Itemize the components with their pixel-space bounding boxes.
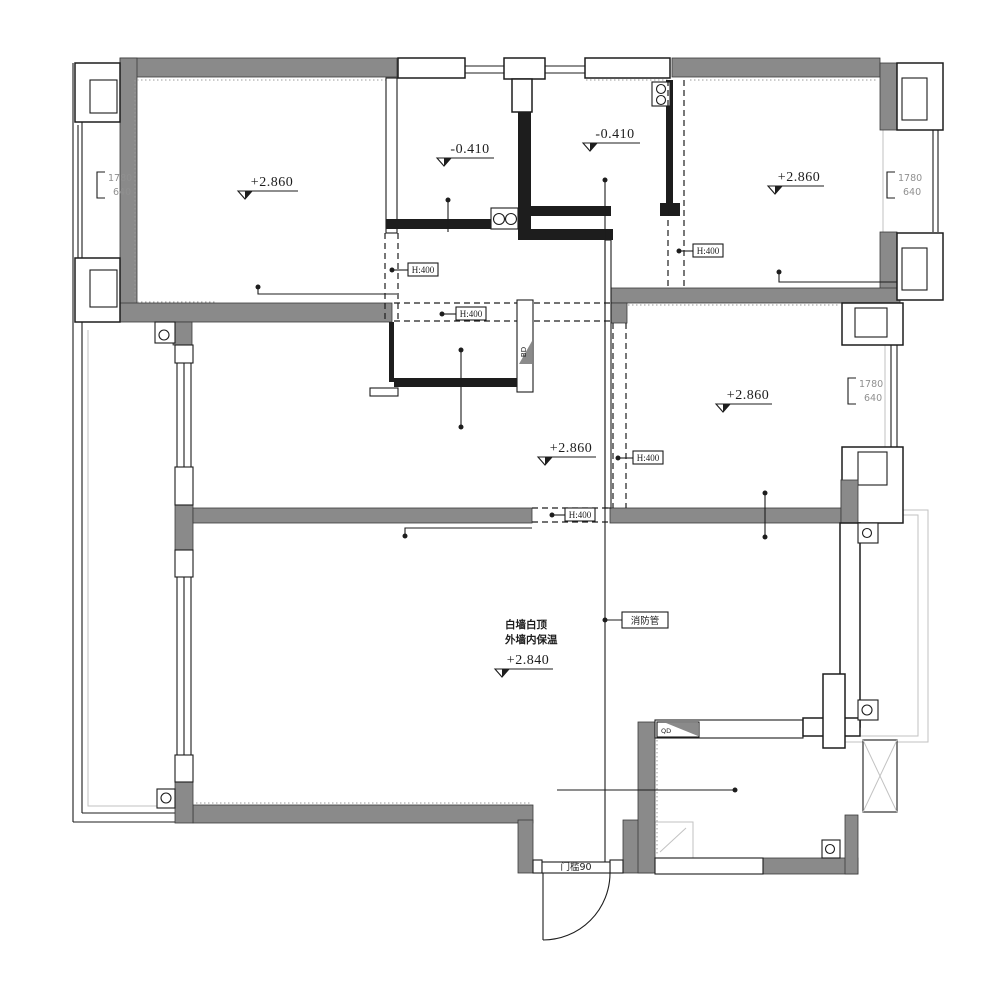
elevation-top-left-room: +2.860 xyxy=(238,175,298,199)
column-t-stem xyxy=(512,79,532,112)
elevation-hall: +2.860 xyxy=(538,441,596,465)
svg-text:1780: 1780 xyxy=(898,173,922,184)
column-t-top xyxy=(504,58,545,79)
wall-center-column xyxy=(518,112,531,229)
wall-mid-horizontal-top xyxy=(610,288,900,303)
wall-middle-right xyxy=(610,508,858,523)
column-tl-top-inner xyxy=(90,80,117,113)
qd-box: QD xyxy=(657,722,699,737)
column-mr-top-inner xyxy=(855,308,887,337)
wall-right-upper xyxy=(880,63,897,130)
elevation-bath-right: -0.410 xyxy=(583,127,640,151)
column-mr-bottom-inner xyxy=(858,452,887,485)
svg-text:H:400: H:400 xyxy=(569,510,592,520)
beam-tag-4: H:400 xyxy=(616,451,664,464)
column-tr-top-inner xyxy=(902,78,927,120)
elevation-mid-right-room: +2.860 xyxy=(716,388,772,412)
beam-tag-5: H:400 xyxy=(550,508,596,521)
wall-bath-right-bottom xyxy=(531,206,611,216)
wall-hall-left xyxy=(389,322,394,382)
entry-jamb-right xyxy=(610,860,623,873)
svg-text:H:400: H:400 xyxy=(637,453,660,463)
jamb-4 xyxy=(175,755,193,782)
svg-text:1780: 1780 xyxy=(108,173,132,184)
window-top-2 xyxy=(585,58,670,78)
threshold-label: 门槛90 xyxy=(560,861,591,873)
wall-top-left-top xyxy=(120,58,397,77)
wall-kitchen-left xyxy=(638,722,655,873)
wall-bath-left-bottom xyxy=(386,219,491,229)
wall-pipe-shaft xyxy=(605,240,611,508)
bd-duct: BD xyxy=(517,300,533,392)
svg-text:-0.410: -0.410 xyxy=(450,142,489,157)
floor-plan-drawing: BD QD H:400 H:400 xyxy=(0,0,1000,990)
elevation-living: +2.840 xyxy=(495,653,553,677)
meter-box-4 xyxy=(858,523,878,543)
svg-text:+2.860: +2.860 xyxy=(727,388,769,403)
wall-left-bottom-corner xyxy=(175,782,193,823)
wall-top-right-top xyxy=(672,58,880,77)
svg-text:+2.860: +2.860 xyxy=(550,441,592,456)
svg-text:+2.860: +2.860 xyxy=(778,170,820,185)
beam-tag-1: H:400 xyxy=(390,263,439,276)
jamb-2 xyxy=(175,467,193,505)
svg-text:消防管: 消防管 xyxy=(631,615,660,627)
meter-box-2 xyxy=(157,789,175,808)
wall-stub xyxy=(173,322,192,345)
fire-pipe-tag: 消防管 xyxy=(603,612,669,628)
svg-text:H:400: H:400 xyxy=(460,309,483,319)
svg-text:-0.410: -0.410 xyxy=(595,127,634,142)
kitchen-window-bottom xyxy=(655,858,763,874)
svg-text:1780: 1780 xyxy=(859,379,883,390)
elevation-bath-left: -0.410 xyxy=(437,142,494,166)
door-swing-arc xyxy=(543,873,610,940)
door-jamb-small xyxy=(370,388,398,396)
column-tr-bottom-inner xyxy=(902,248,927,290)
svg-text:+2.860: +2.860 xyxy=(251,175,293,190)
wall-entry-left xyxy=(518,820,533,873)
qd-label: QD xyxy=(661,727,671,735)
window-top-1 xyxy=(398,58,465,78)
wall-hall-bottom xyxy=(394,378,533,387)
meter-box-5 xyxy=(822,840,840,858)
wall-living-bottom xyxy=(193,805,533,823)
jamb-1 xyxy=(175,345,193,363)
wall-top-left-bottom xyxy=(120,303,392,322)
entry-jamb-left xyxy=(533,860,542,873)
elevation-top-right-room: +2.860 xyxy=(768,170,824,194)
window-tag-right-mid: 1780 640 xyxy=(848,378,883,404)
column-tl-bottom-inner xyxy=(90,270,117,307)
wall-kitchen-bottom xyxy=(763,858,858,874)
beam-tag-2: H:400 xyxy=(440,307,487,320)
svg-text:H:400: H:400 xyxy=(412,265,435,275)
svg-text:640: 640 xyxy=(903,187,921,198)
bd-duct-label: BD xyxy=(520,347,528,357)
note-line-2: 外墙内保温 xyxy=(504,633,558,646)
window-tag-right-top: 1780 640 xyxy=(887,172,922,198)
elevator-shaft xyxy=(863,740,897,812)
wall-corner-stub xyxy=(610,303,627,323)
note-line-1: 白墙白顶 xyxy=(505,618,547,631)
jamb-3 xyxy=(175,550,193,577)
wall-hall-north xyxy=(518,229,613,240)
wall-middle-left xyxy=(193,508,532,523)
svg-text:H:400: H:400 xyxy=(697,246,720,256)
wall-bath-left-shared xyxy=(386,78,397,233)
svg-text:640: 640 xyxy=(864,393,882,404)
wall-notes: 白墙白顶 外墙内保温 xyxy=(504,618,558,646)
column-mr-gray-sub xyxy=(841,480,858,523)
svg-text:+2.840: +2.840 xyxy=(507,653,549,668)
floor-plan-canvas: BD QD H:400 H:400 xyxy=(0,0,1000,990)
wall-kitchen-right xyxy=(845,815,858,874)
svg-text:640: 640 xyxy=(113,187,131,198)
wall-left-junction xyxy=(175,505,193,550)
cross-column-v xyxy=(823,674,845,748)
entry-door xyxy=(543,873,610,940)
kitchen-sink-outline xyxy=(655,822,693,858)
meter-box-3 xyxy=(858,700,878,720)
